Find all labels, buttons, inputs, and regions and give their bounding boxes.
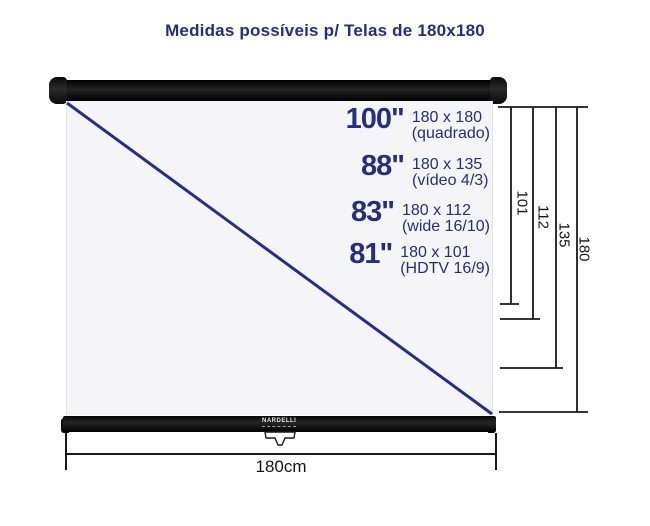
height-marker-101: 101 [514,190,531,215]
top-case-right-cap [490,77,507,104]
top-case-left-cap [49,77,67,104]
size-format: (HDTV 16/9) [400,261,490,277]
size-description: 180 x 112 (wide 16/10) [402,197,490,235]
brand-logo: NARDELLI [262,418,296,427]
size-inches: 100" [320,104,404,142]
size-row-100: 100" 180 x 180 (quadrado) [320,104,490,142]
page-title: Medidas possíveis p/ Telas de 180x180 [0,21,650,41]
height-marker-112: 112 [535,205,552,229]
size-inches: 81" [320,239,392,277]
size-description: 180 x 101 (HDTV 16/9) [400,239,490,277]
size-row-83: 83" 180 x 112 (wide 16/10) [320,197,490,235]
size-dimensions: 180 x 180 [412,110,490,126]
width-dimension-label: 180cm [66,457,496,477]
size-format: (wide 16/10) [402,219,490,235]
screen-measurements-diagram: Medidas possíveis p/ Telas de 180x180 NA… [0,0,650,526]
size-dimensions: 180 x 101 [400,245,490,261]
size-dimensions: 180 x 135 [412,157,488,173]
height-marker-180: 180 [576,236,593,261]
size-inches: 83" [320,197,394,235]
height-dimension-lines [498,107,588,412]
height-marker-135: 135 [556,222,573,247]
size-row-88: 88" 180 x 135 (vídeo 4/3) [320,151,490,189]
size-inches: 88" [320,151,404,189]
size-description: 180 x 135 (vídeo 4/3) [412,151,488,189]
size-description: 180 x 180 (quadrado) [412,104,490,142]
pull-handle-icon [263,431,297,448]
size-row-81: 81" 180 x 101 (HDTV 16/9) [320,239,490,277]
size-format: (vídeo 4/3) [412,173,488,189]
size-dimensions: 180 x 112 [402,203,490,219]
size-format: (quadrado) [412,126,490,142]
screen-top-case [57,80,497,101]
